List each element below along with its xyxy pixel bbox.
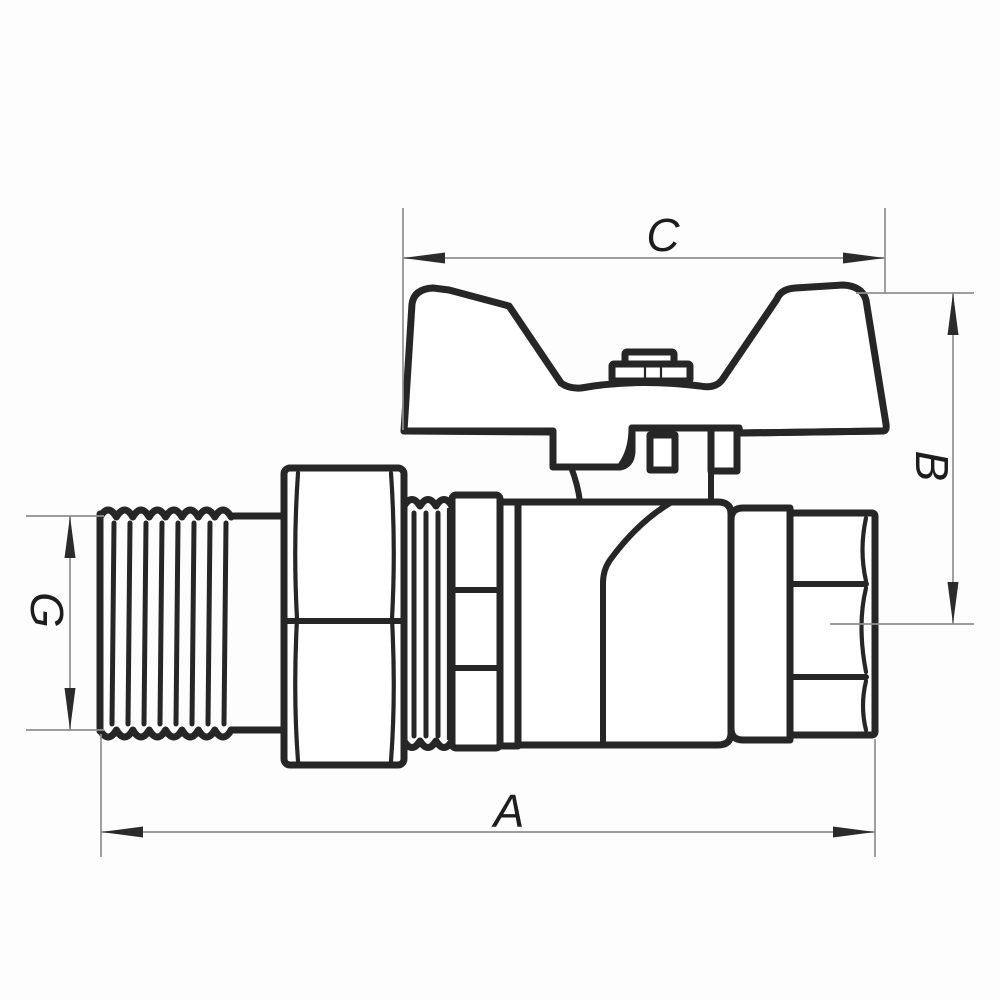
body-thread: [404, 500, 452, 748]
dim-b-arrow-bottom-icon: [948, 582, 959, 624]
dim-c-arrow-right-icon: [843, 253, 885, 264]
dim-a-label: A: [491, 785, 525, 837]
dim-b-arrow-top-icon: [948, 293, 959, 335]
ball-valve-drawing: C B G A: [0, 0, 1000, 1000]
dim-g-arrow-top-icon: [65, 516, 76, 558]
dimension-g: G: [21, 516, 104, 730]
outlet-neck: [731, 508, 790, 740]
outlet-band: [731, 508, 790, 740]
valve-technical-drawing-page: C B G A: [0, 0, 1000, 1000]
handle-bottom-left-edge: [404, 431, 553, 432]
stem-neck-left: [571, 467, 580, 502]
dim-b-label: B: [906, 451, 958, 482]
body-thread-crest-top: [404, 500, 452, 507]
valve-body: [518, 502, 731, 745]
thread-ridges: [112, 523, 226, 724]
dim-g-label: G: [21, 592, 73, 628]
thread-crest-top: [100, 510, 231, 517]
stem-key: [650, 435, 675, 470]
thread-crest-bottom: [100, 730, 231, 737]
dim-a-arrow-right-icon: [833, 827, 875, 838]
union-nut: [284, 468, 404, 765]
stem-cap: [612, 352, 690, 381]
union-nut-chamfer-right: [391, 473, 394, 761]
dim-c-arrow-left-icon: [403, 253, 445, 264]
body-collar: [452, 495, 518, 748]
dimension-a: A: [101, 734, 875, 857]
union-nut-body: [284, 468, 404, 765]
pipe-shank: [231, 516, 288, 730]
male-thread: [100, 510, 231, 737]
body-thread-crest-bottom: [404, 741, 452, 748]
body-thread-ridges: [414, 513, 438, 736]
gland-nut: [711, 428, 737, 471]
union-nut-chamfer-left: [295, 473, 298, 761]
stem-cap-top: [625, 352, 674, 364]
dim-a-arrow-left-icon: [101, 827, 143, 838]
dim-g-arrow-bottom-icon: [65, 688, 76, 730]
dim-c-label: C: [646, 209, 680, 261]
collar: [452, 495, 500, 748]
handle-bottom-right-edge: [740, 431, 883, 433]
